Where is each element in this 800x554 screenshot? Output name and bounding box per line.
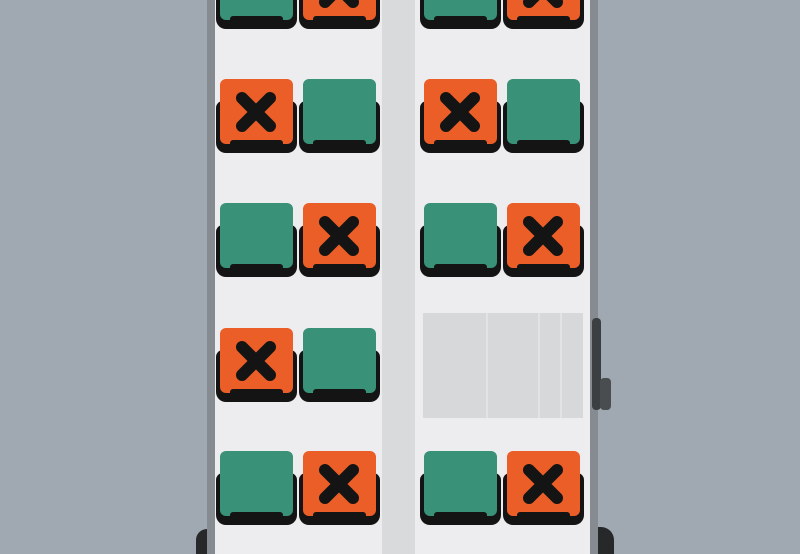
x-icon: [315, 460, 363, 508]
panel-seam: [486, 313, 488, 418]
luggage-panel: [423, 313, 583, 418]
x-icon: [519, 0, 567, 12]
seat-cushion-bar: [517, 512, 570, 522]
seat-row1-right-1[interactable]: [424, 0, 497, 20]
x-icon: [232, 337, 280, 385]
seat-row1-left-1[interactable]: [220, 0, 293, 20]
seat-row3-right-1[interactable]: [424, 203, 497, 268]
seat-pad: [507, 79, 580, 144]
seat-cushion-bar: [434, 140, 487, 150]
seat-row5-left-1[interactable]: [220, 451, 293, 516]
bus-scene: [0, 0, 800, 554]
seat-cushion-bar: [517, 140, 570, 150]
seat-pad: [424, 451, 497, 516]
door-handle-icon: [600, 378, 611, 410]
seat-cushion-bar: [313, 512, 366, 522]
seat-pad: [220, 451, 293, 516]
seat-cushion-bar: [313, 264, 366, 274]
x-icon: [436, 88, 484, 136]
seat-row5-left-2[interactable]: [303, 451, 376, 516]
x-icon: [315, 212, 363, 260]
seat-cushion-bar: [313, 140, 366, 150]
seat-cushion-bar: [230, 512, 283, 522]
seat-row3-left-1[interactable]: [220, 203, 293, 268]
seat-cushion-bar: [313, 389, 366, 399]
seat-cushion-bar: [230, 389, 283, 399]
seat-row3-right-2[interactable]: [507, 203, 580, 268]
aisle: [382, 0, 415, 554]
seat-cushion-bar: [434, 264, 487, 274]
seat-cushion-bar: [230, 264, 283, 274]
seat-row1-right-2[interactable]: [507, 0, 580, 20]
seat-pad: [303, 328, 376, 393]
bus-body: [207, 0, 598, 554]
seat-row2-left-1[interactable]: [220, 79, 293, 144]
seat-cushion-bar: [313, 16, 366, 26]
x-icon: [519, 212, 567, 260]
x-icon: [232, 88, 280, 136]
seat-row4-left-1[interactable]: [220, 328, 293, 393]
bus-interior: [215, 0, 590, 554]
seat-cushion-bar: [230, 140, 283, 150]
seat-pad: [303, 79, 376, 144]
seat-row3-left-2[interactable]: [303, 203, 376, 268]
seat-row4-left-2[interactable]: [303, 328, 376, 393]
seat-cushion-bar: [434, 512, 487, 522]
seat-row1-left-2[interactable]: [303, 0, 376, 20]
seat-row2-right-1[interactable]: [424, 79, 497, 144]
seat-cushion-bar: [230, 16, 283, 26]
seat-row5-right-1[interactable]: [424, 451, 497, 516]
x-icon: [519, 460, 567, 508]
seat-row5-right-2[interactable]: [507, 451, 580, 516]
seat-cushion-bar: [434, 16, 487, 26]
x-icon: [315, 0, 363, 12]
panel-seam: [538, 313, 540, 418]
seat-cushion-bar: [517, 264, 570, 274]
seat-cushion-bar: [517, 16, 570, 26]
seat-pad: [220, 203, 293, 268]
panel-seam: [560, 313, 562, 418]
seat-row2-left-2[interactable]: [303, 79, 376, 144]
seat-pad: [424, 203, 497, 268]
seat-row2-right-2[interactable]: [507, 79, 580, 144]
